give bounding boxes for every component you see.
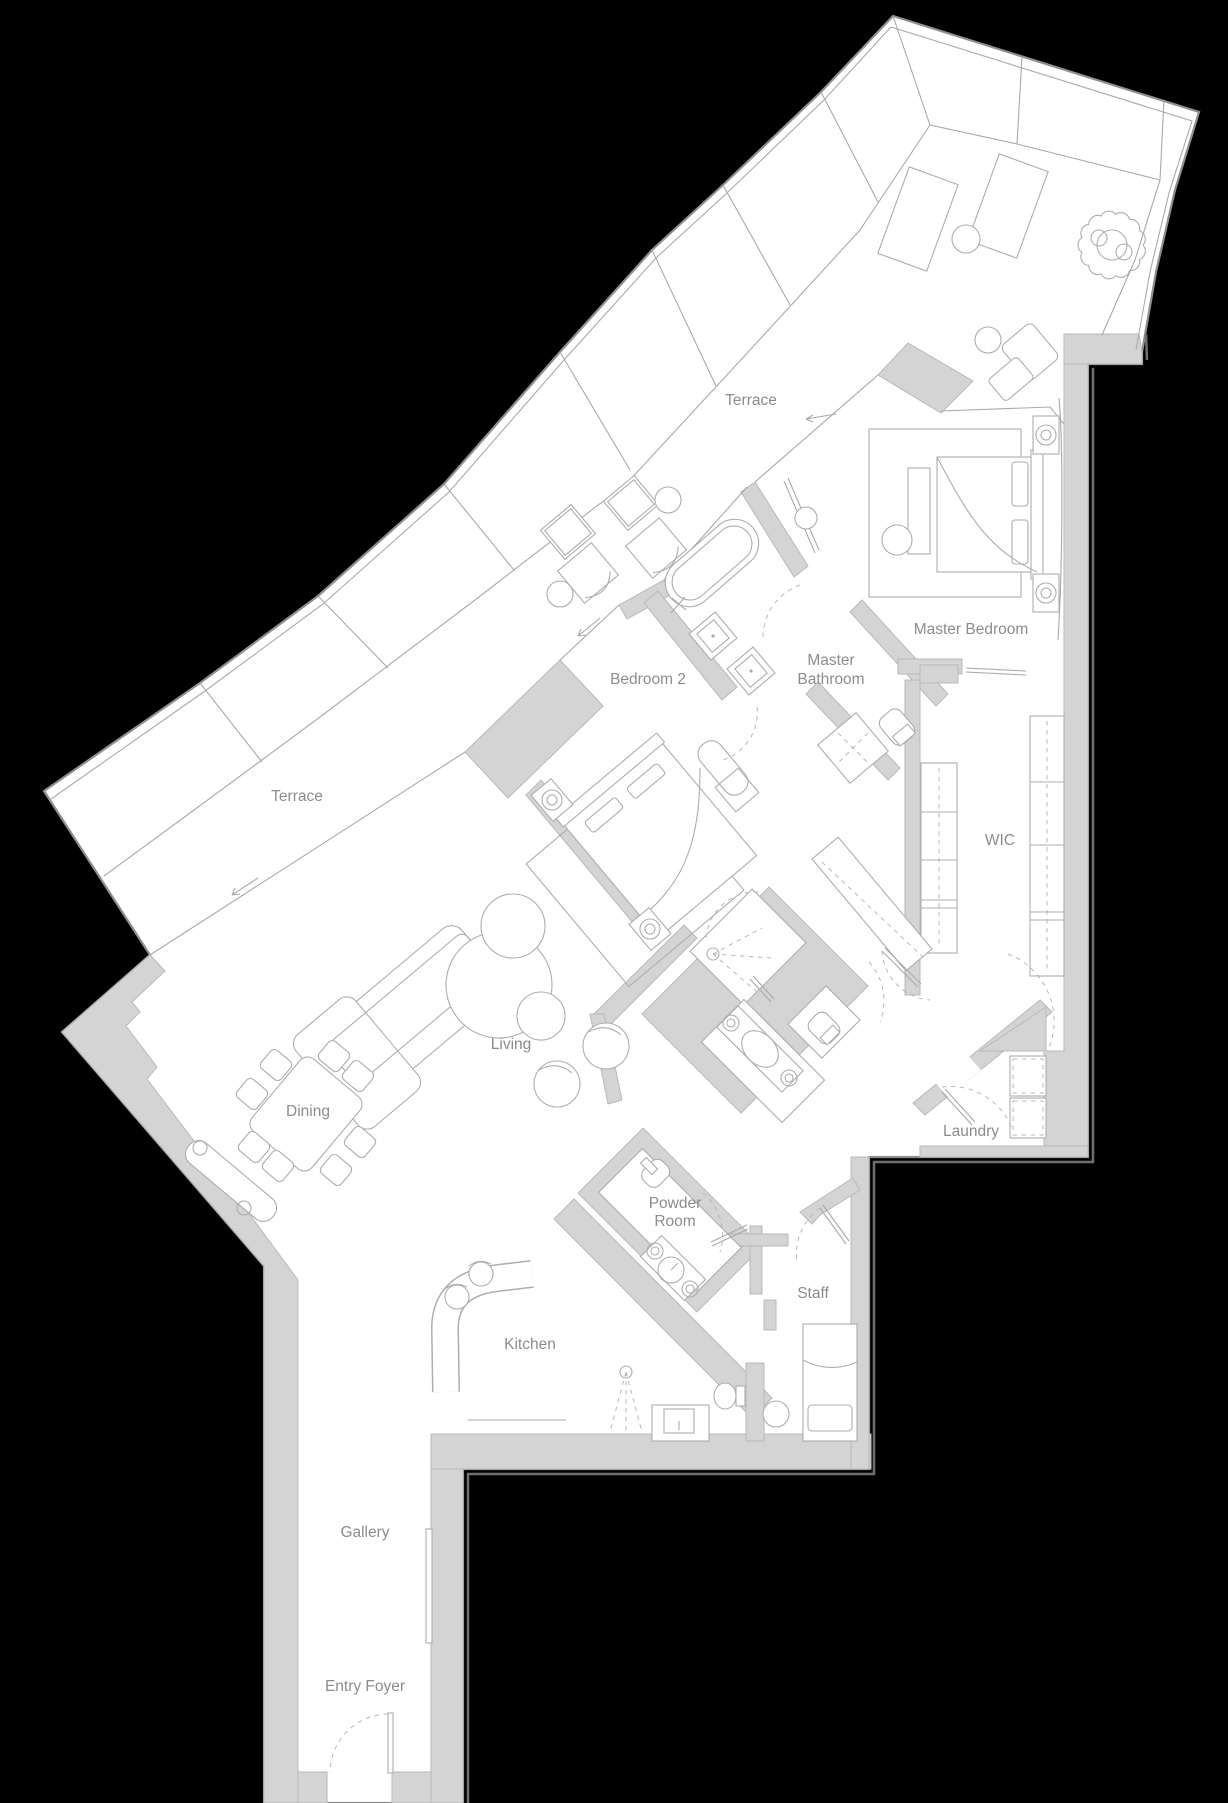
svg-text:Gallery: Gallery	[340, 1524, 389, 1541]
svg-text:Dining: Dining	[286, 1103, 330, 1120]
svg-text:Master: Master	[807, 652, 854, 669]
svg-text:Powder: Powder	[649, 1195, 702, 1212]
svg-text:Living: Living	[491, 1036, 532, 1053]
svg-text:Kitchen: Kitchen	[504, 1336, 556, 1353]
svg-text:Bathroom: Bathroom	[797, 671, 864, 688]
svg-text:Terrace: Terrace	[725, 392, 777, 409]
svg-text:Entry Foyer: Entry Foyer	[325, 1678, 405, 1695]
svg-text:Laundry: Laundry	[943, 1123, 999, 1140]
svg-text:Master Bedroom: Master Bedroom	[914, 621, 1029, 638]
svg-text:WIC: WIC	[985, 832, 1015, 849]
svg-text:Staff: Staff	[797, 1285, 829, 1302]
svg-text:Room: Room	[654, 1213, 695, 1230]
svg-text:Bedroom 2: Bedroom 2	[610, 671, 686, 688]
svg-text:Terrace: Terrace	[271, 788, 323, 805]
